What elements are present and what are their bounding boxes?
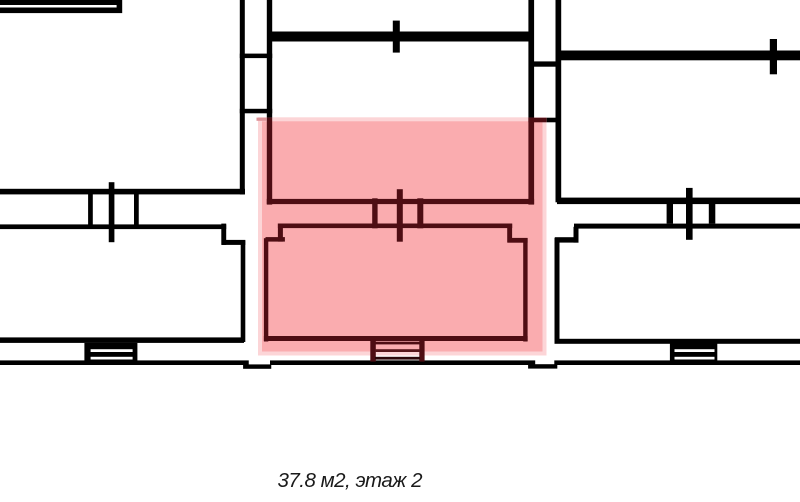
svg-text:37.8 м2, этаж 2: 37.8 м2, этаж 2 — [278, 469, 424, 492]
